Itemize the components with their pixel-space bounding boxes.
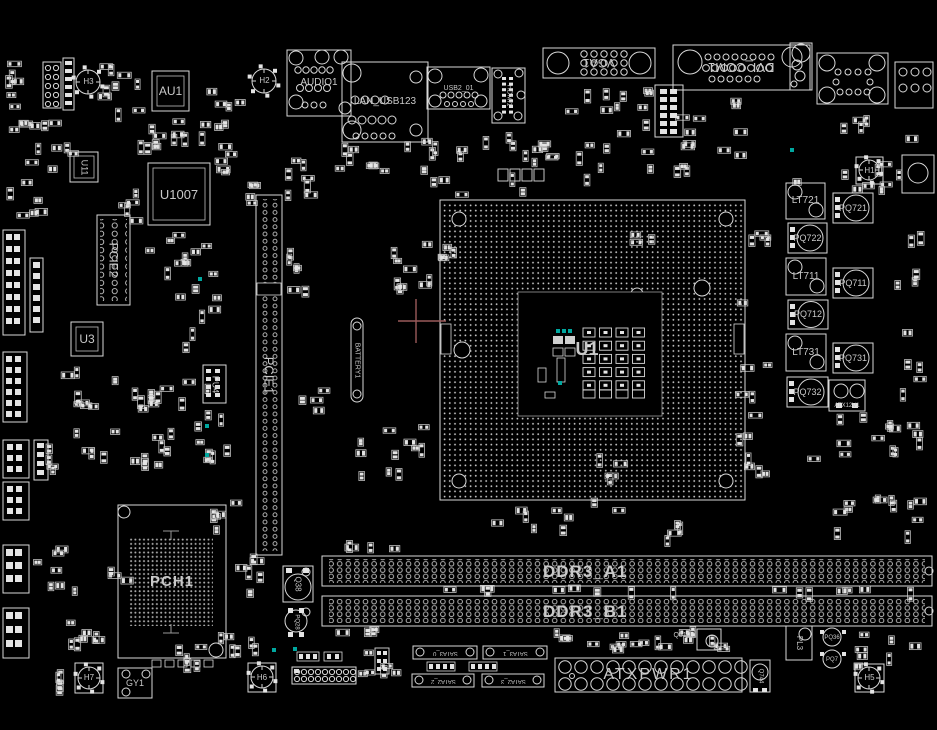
slot-ddr3-a1[interactable]: DDR3_A1 bbox=[322, 556, 932, 586]
mounting-hole-h1[interactable]: H1 bbox=[856, 157, 883, 184]
component-pq731-label: PQ731 bbox=[839, 354, 867, 363]
component-q38-label: Q38 bbox=[294, 576, 302, 591]
component-lt731[interactable]: LT731 bbox=[786, 334, 826, 371]
component-q744[interactable]: Q744 bbox=[750, 660, 770, 692]
component-u1007[interactable]: U1007 bbox=[148, 163, 210, 225]
component-pq7-label: PQ7 bbox=[826, 657, 838, 663]
mounting-hole-h3[interactable]: H3 bbox=[75, 68, 102, 95]
component-pq711-label: PQ711 bbox=[839, 279, 866, 288]
component-au1[interactable]: AU1 bbox=[152, 71, 189, 111]
connector-sata-4[interactable]: SATA2_3 bbox=[482, 674, 544, 687]
connector-sata-1[interactable]: SATA3_0 bbox=[413, 646, 477, 659]
connector-sata-3-label: SATA2_2 bbox=[431, 678, 456, 684]
mounting-hole-h6[interactable]: H6 bbox=[248, 663, 276, 692]
connector-vga1-label: VGA1 bbox=[583, 57, 615, 69]
component-pch1[interactable]: PCH1 bbox=[118, 505, 226, 658]
slot-pcie2-label: PCIE2 bbox=[108, 243, 120, 278]
component-pl3-label: PL3 bbox=[795, 636, 803, 650]
mounting-hole-h2[interactable]: H2 bbox=[251, 67, 278, 94]
component-lt711-label: LT711 bbox=[793, 272, 820, 282]
connector-lan-usb-label: LAN_USB123 bbox=[354, 97, 416, 107]
component-battery1-label: BATTERY1 bbox=[354, 342, 361, 378]
mounting-hole-h3-label: H3 bbox=[83, 78, 93, 86]
component-gy1[interactable]: GY1 bbox=[118, 668, 152, 698]
component-pq722-label: PQ722 bbox=[793, 234, 821, 243]
connector-hdmi1[interactable]: HDMI1 bbox=[492, 68, 525, 123]
component-pch1-label: PCH1 bbox=[150, 574, 194, 589]
slot-pcie1[interactable]: PCIE1 bbox=[256, 195, 282, 555]
slot-pcie1-label: PCIE1 bbox=[263, 356, 276, 394]
connector-dvi-com1-label: DVI_COM1 bbox=[708, 61, 774, 74]
component-u11[interactable]: U11 bbox=[70, 152, 98, 182]
connector-vga1[interactable]: VGA1 bbox=[543, 48, 655, 78]
connector-dvi-com1[interactable]: DVI_COM1 bbox=[673, 45, 810, 90]
component-au1-label: AU1 bbox=[159, 85, 182, 97]
component-u3-label: U3 bbox=[79, 333, 94, 345]
mounting-hole-h2-label: H2 bbox=[259, 77, 269, 85]
connector-usb2-01-label: USB2_01 bbox=[444, 85, 474, 92]
component-pl3[interactable]: PL3 bbox=[786, 626, 812, 660]
component-pq731[interactable]: PQ731 bbox=[833, 343, 873, 373]
connector-atx12v1-label: ATX12V1 bbox=[834, 403, 859, 409]
connector-sata-2-label: SATA3_1 bbox=[503, 650, 528, 656]
connector-ps2-block[interactable] bbox=[817, 53, 888, 104]
component-pu4[interactable]: PU4 bbox=[203, 365, 226, 403]
connector-lan-usb[interactable]: LAN_USB123 bbox=[342, 62, 428, 142]
component-battery1[interactable]: BATTERY1 bbox=[351, 318, 363, 402]
connector-front-panel-header[interactable] bbox=[292, 667, 356, 684]
component-pq28-label: PQ28 bbox=[294, 614, 300, 629]
component-u3[interactable]: U3 bbox=[71, 322, 103, 356]
component-pq711[interactable]: PQ711 bbox=[833, 268, 873, 298]
connector-atxpwr1-label: ATXPWR1 bbox=[603, 667, 693, 683]
component-q810-label: Q810 bbox=[673, 632, 690, 639]
board-canvas[interactable]: H3 H2 H1 H7 H6 H5 AU1 U11 U1007 U3 PU4 A… bbox=[0, 0, 937, 730]
component-u1007-label: U1007 bbox=[160, 188, 198, 201]
component-lt721-label: LT721 bbox=[792, 196, 820, 206]
connector-sata-1-label: SATA3_0 bbox=[433, 650, 458, 656]
component-pq36-label: PQ36 bbox=[824, 635, 839, 641]
component-pu4-label: PU4 bbox=[210, 375, 219, 393]
connector-usb2-01[interactable]: USB2_01 bbox=[427, 67, 490, 109]
slot-ddr3-b1-label: DDR3_B1 bbox=[543, 603, 627, 620]
mounting-hole-h7-label: H7 bbox=[84, 674, 94, 682]
connector-atx12v1[interactable]: ATX12V1 bbox=[829, 380, 865, 411]
component-pq722[interactable]: PQ722 bbox=[788, 223, 827, 253]
component-q38[interactable]: Q38 bbox=[283, 566, 313, 602]
mounting-hole-h6-label: H6 bbox=[257, 674, 267, 682]
component-pq36[interactable]: PQ36 bbox=[818, 627, 846, 649]
connector-hdmi1-label: HDMI1 bbox=[505, 85, 512, 107]
component-u11-label: U11 bbox=[80, 159, 89, 175]
mounting-hole-h7[interactable]: H7 bbox=[75, 663, 103, 693]
component-lt711[interactable]: LT711 bbox=[786, 258, 826, 295]
mounting-hole-h5-label: H5 bbox=[864, 674, 874, 682]
component-pq732-label: PQ732 bbox=[793, 388, 821, 397]
component-pq28[interactable]: PQ28 bbox=[285, 606, 309, 638]
component-u1[interactable]: U1 bbox=[570, 334, 604, 364]
component-q810[interactable]: Q810 bbox=[668, 629, 696, 642]
component-pq712[interactable]: PQ712 bbox=[788, 300, 828, 329]
component-u1-label: U1 bbox=[575, 340, 598, 358]
connector-audio1-label: AUDIO1 bbox=[300, 78, 337, 88]
mounting-hole-h5[interactable]: H5 bbox=[855, 664, 884, 692]
slot-ddr3-b1[interactable]: DDR3_B1 bbox=[322, 596, 932, 626]
component-lt721[interactable]: LT721 bbox=[786, 183, 825, 219]
component-pq732[interactable]: PQ732 bbox=[787, 377, 828, 407]
connector-atxpwr1[interactable]: ATXPWR1 bbox=[555, 658, 742, 692]
slot-ddr3-a1-label: DDR3_A1 bbox=[543, 563, 627, 580]
connector-sata-2[interactable]: SATA3_1 bbox=[483, 646, 547, 659]
component-pq712-label: PQ712 bbox=[794, 310, 822, 319]
component-pq721-label: PQ721 bbox=[839, 204, 867, 213]
slot-pcie2[interactable]: PCIE2 bbox=[97, 215, 130, 305]
component-pq7[interactable]: PQ7 bbox=[818, 650, 846, 670]
connector-sata-4-label: SATA2_3 bbox=[501, 678, 526, 684]
mounting-hole-h1-label: H1 bbox=[864, 167, 874, 175]
component-gy1-label: GY1 bbox=[126, 679, 144, 688]
connector-sata-3[interactable]: SATA2_2 bbox=[412, 674, 474, 687]
component-q744-label: Q744 bbox=[757, 669, 763, 684]
component-pq721[interactable]: PQ721 bbox=[833, 193, 873, 223]
component-lt731-label: LT731 bbox=[792, 348, 820, 358]
